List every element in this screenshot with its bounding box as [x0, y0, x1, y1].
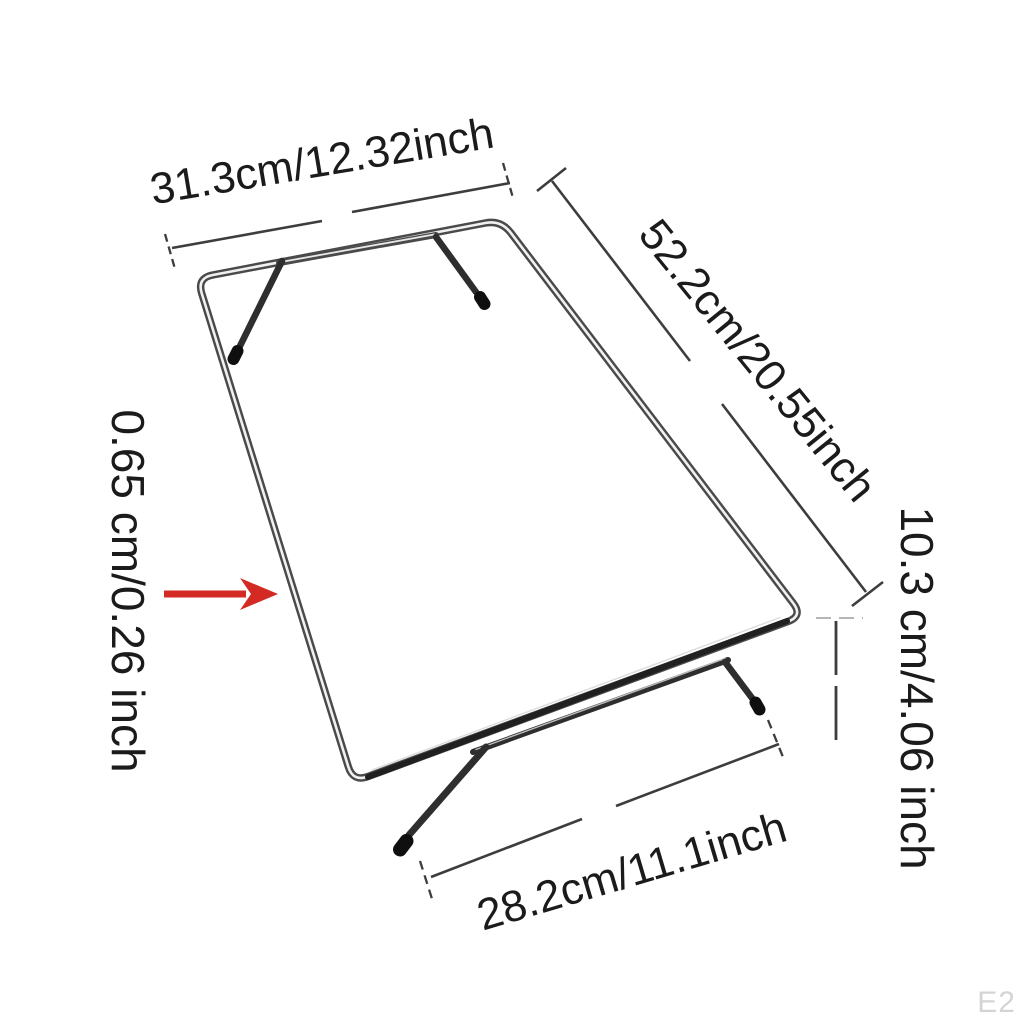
dim-bottom-tick-left	[420, 861, 433, 902]
dim-top-line-b	[352, 183, 510, 212]
dimension-label-height: 10.3 cm/4.06 inch	[890, 506, 944, 869]
dim-top-line-a	[172, 221, 322, 248]
red-arrow	[164, 578, 278, 610]
top-right-foot-cap	[480, 297, 485, 304]
top-leg-assembly	[234, 235, 485, 360]
dim-top-tick-left	[165, 234, 175, 269]
dim-top-tick-right	[503, 163, 513, 198]
top-right-leg	[436, 237, 476, 292]
diagram-canvas: 31.3cm/12.32inch 52.2cm/20.55inch 0.65 c…	[0, 0, 1024, 1024]
dim-right-tbar-bottom	[852, 582, 883, 606]
frame-front-edge-highlight	[372, 618, 780, 771]
frame-front-edge-dark	[368, 621, 787, 777]
top-left-leg	[240, 261, 282, 346]
bottom-crossbar	[473, 660, 728, 752]
dimension-label-thickness: 0.65 cm/0.26 inch	[101, 409, 155, 772]
dim-right-tbar-top	[537, 168, 566, 191]
watermark-text: E2	[977, 986, 1016, 1020]
dim-bottom-line-b	[616, 744, 779, 806]
top-crossbar-highlight	[281, 235, 434, 263]
top-left-foot-cap	[234, 351, 238, 359]
bottom-left-foot-cap	[400, 841, 407, 850]
bottom-crossbar-highlight	[476, 659, 725, 750]
bottom-right-foot-cap	[756, 703, 760, 710]
dim-bottom-tick-right	[768, 720, 783, 757]
bottom-right-leg	[725, 662, 752, 698]
